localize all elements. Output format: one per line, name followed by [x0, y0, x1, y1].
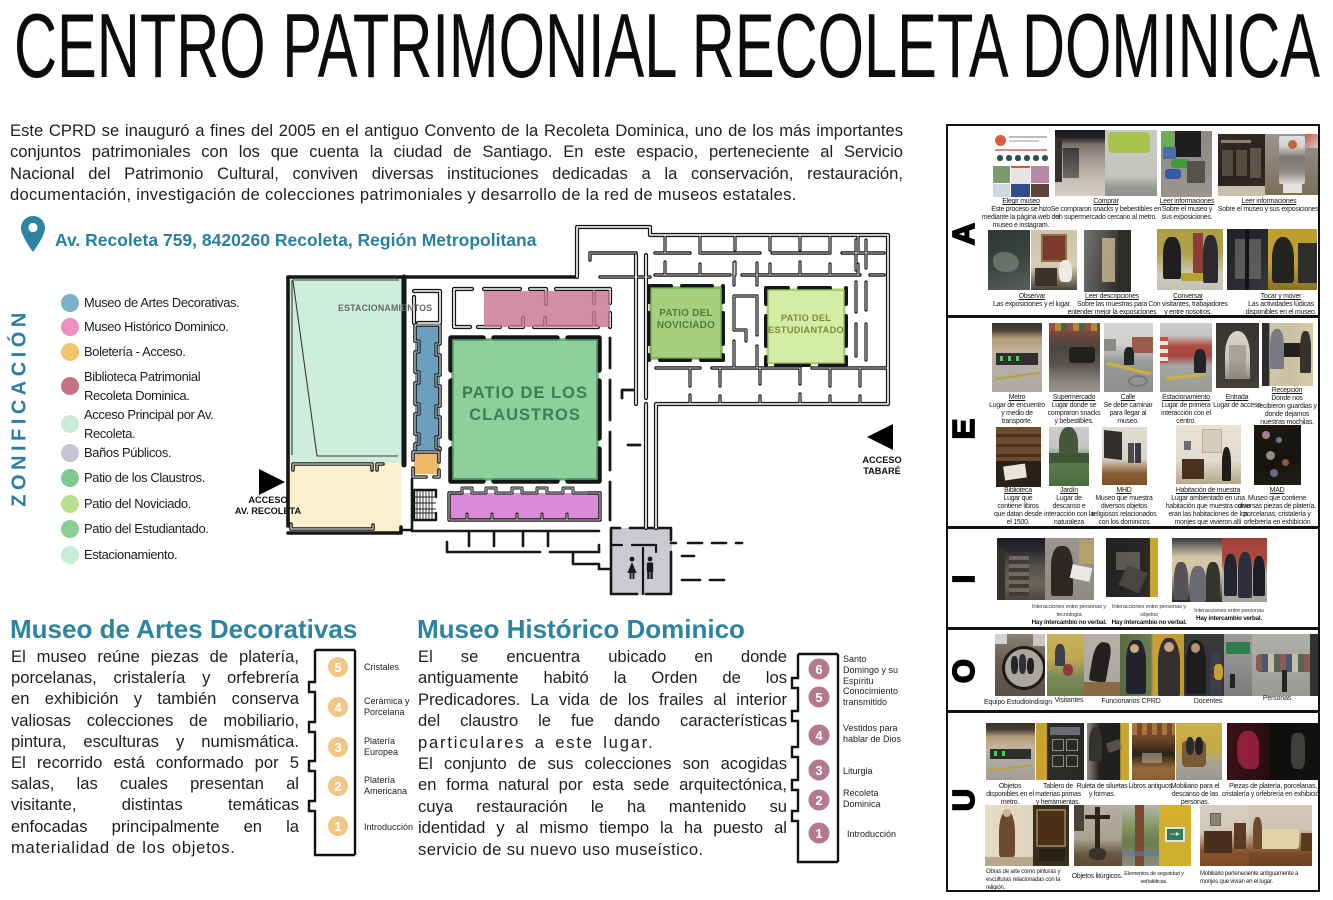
svg-text:ESTACIONAMIENTOS: ESTACIONAMIENTOS — [338, 303, 432, 313]
svg-text:Conocimiento: Conocimiento — [843, 686, 898, 696]
svg-text:3: 3 — [334, 740, 341, 755]
svg-text:ESTUDIANTADO: ESTUDIANTADO — [768, 325, 844, 335]
svg-text:Liturgia: Liturgia — [843, 766, 873, 776]
svg-text:PATIO DEL: PATIO DEL — [659, 308, 713, 319]
svg-text:2: 2 — [815, 793, 822, 808]
svg-text:PATIO DE LOS: PATIO DE LOS — [462, 384, 588, 402]
svg-text:5: 5 — [815, 690, 822, 705]
svg-text:AV. RECOLETA: AV. RECOLETA — [235, 506, 302, 516]
svg-text:Cerámica y: Cerámica y — [364, 696, 410, 706]
svg-text:TABARÉ: TABARÉ — [863, 465, 901, 476]
svg-text:3: 3 — [815, 763, 822, 778]
svg-text:NOVICIADO: NOVICIADO — [657, 320, 715, 331]
svg-text:Dominica: Dominica — [843, 799, 881, 809]
svg-text:transmitido: transmitido — [843, 697, 887, 707]
svg-text:Domingo y su: Domingo y su — [843, 665, 898, 675]
svg-text:1: 1 — [334, 819, 341, 834]
svg-text:4: 4 — [815, 728, 823, 743]
svg-text:PATIO DEL: PATIO DEL — [781, 313, 831, 323]
svg-text:ACCESO: ACCESO — [862, 455, 901, 465]
svg-text:Vestidos para: Vestidos para — [843, 723, 898, 733]
svg-text:hablar de Dios: hablar de Dios — [843, 734, 902, 744]
svg-text:Platería: Platería — [364, 736, 395, 746]
svg-text:Europea: Europea — [364, 747, 398, 757]
svg-text:Platería: Platería — [364, 775, 395, 785]
svg-text:6: 6 — [815, 662, 822, 677]
svg-text:Santo: Santo — [843, 654, 867, 664]
svg-text:ACCESO: ACCESO — [248, 495, 287, 505]
svg-text:CLAUSTROS: CLAUSTROS — [469, 406, 581, 424]
svg-text:Cristales: Cristales — [364, 662, 400, 672]
svg-text:Porcelana: Porcelana — [364, 707, 405, 717]
svg-text:Espíritu: Espíritu — [843, 676, 874, 686]
svg-text:Introducción: Introducción — [364, 822, 413, 832]
svg-text:1: 1 — [815, 826, 822, 841]
svg-text:5: 5 — [334, 660, 341, 675]
svg-text:2: 2 — [334, 779, 341, 794]
svg-text:Americana: Americana — [364, 786, 407, 796]
svg-text:4: 4 — [334, 700, 342, 715]
svg-text:Recoleta: Recoleta — [843, 788, 879, 798]
svg-text:Introducción: Introducción — [847, 829, 896, 839]
